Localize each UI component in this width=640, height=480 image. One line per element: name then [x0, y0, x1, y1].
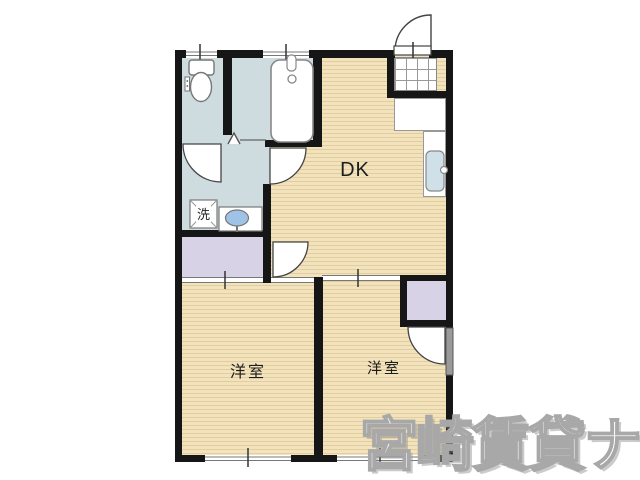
room-label-western-right: 洋室	[344, 357, 424, 378]
entry-door-icon	[394, 15, 431, 58]
washing-machine-icon: 洗	[190, 200, 217, 228]
room-label-western-left: 洋室	[208, 358, 288, 382]
floor-plan-canvas: 洗 DK 洋室 洋室 宮崎賃貸ナビ	[0, 0, 640, 480]
room-label-dk: DK	[325, 159, 385, 182]
wash-basin-icon	[219, 207, 262, 232]
kitchen-sink-icon	[426, 151, 448, 191]
toilet-icon	[185, 60, 214, 102]
laundry-label: 洗	[197, 207, 210, 222]
folding-door-icon	[228, 133, 266, 144]
watermark-logo: 宮崎賃貸ナビ	[360, 398, 640, 480]
bathtub-icon	[271, 55, 313, 142]
washroom-dk-door-icon	[270, 148, 306, 184]
toilet-door-icon	[183, 144, 221, 182]
dk-left-room-door-icon	[273, 242, 308, 277]
